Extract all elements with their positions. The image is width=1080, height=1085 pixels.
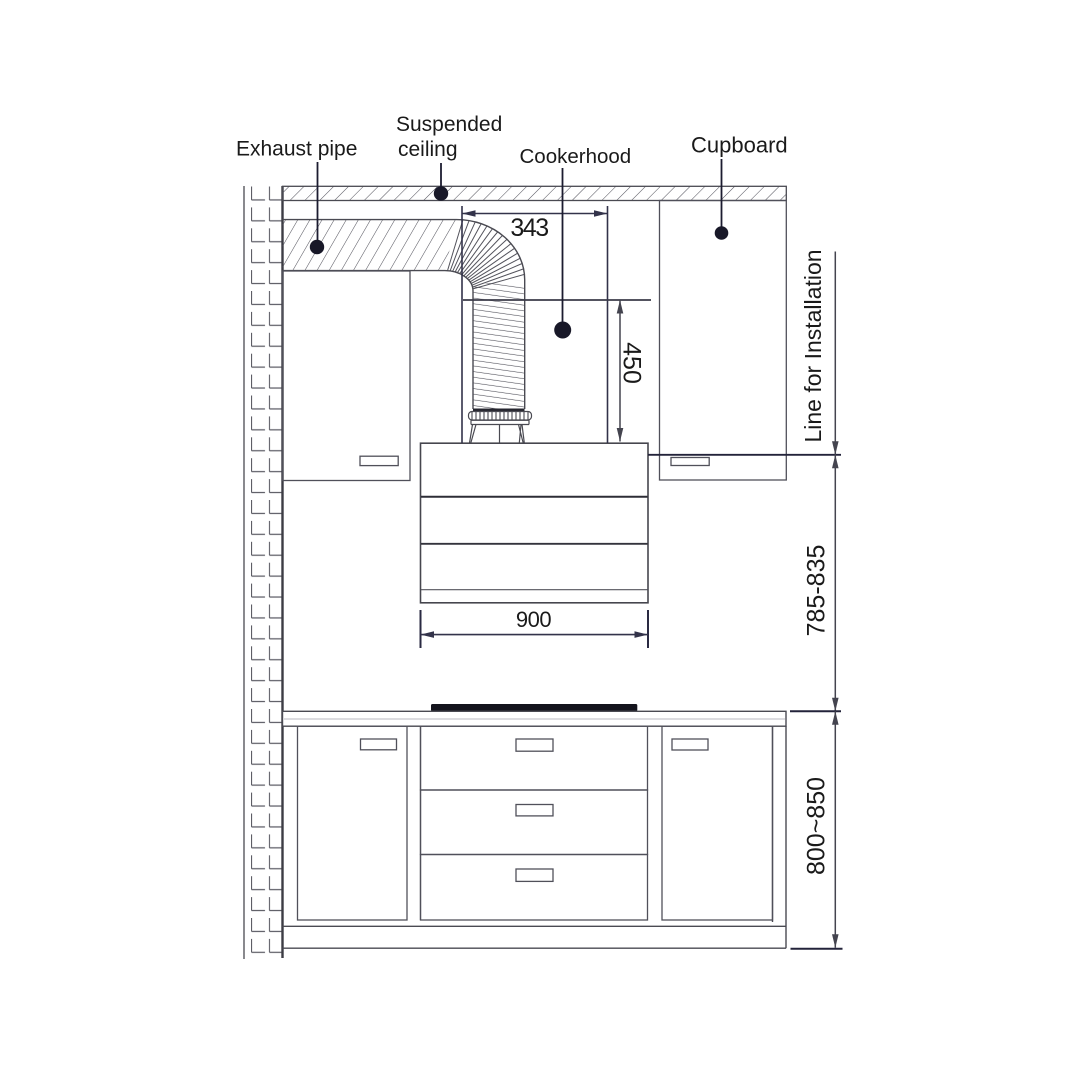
svg-text:343: 343 bbox=[510, 214, 548, 242]
svg-text:785-835: 785-835 bbox=[803, 545, 831, 637]
svg-text:Exhaust pipe: Exhaust pipe bbox=[236, 138, 357, 161]
svg-text:450: 450 bbox=[618, 342, 646, 384]
svg-text:Cupboard: Cupboard bbox=[691, 133, 788, 158]
svg-text:ceiling: ceiling bbox=[398, 138, 458, 161]
svg-text:Suspended: Suspended bbox=[396, 113, 502, 136]
svg-text:800~850: 800~850 bbox=[803, 777, 831, 875]
svg-text:Cookerhood: Cookerhood bbox=[520, 145, 632, 168]
svg-text:Line for Installation: Line for Installation bbox=[800, 249, 826, 442]
svg-text:900: 900 bbox=[516, 607, 551, 632]
